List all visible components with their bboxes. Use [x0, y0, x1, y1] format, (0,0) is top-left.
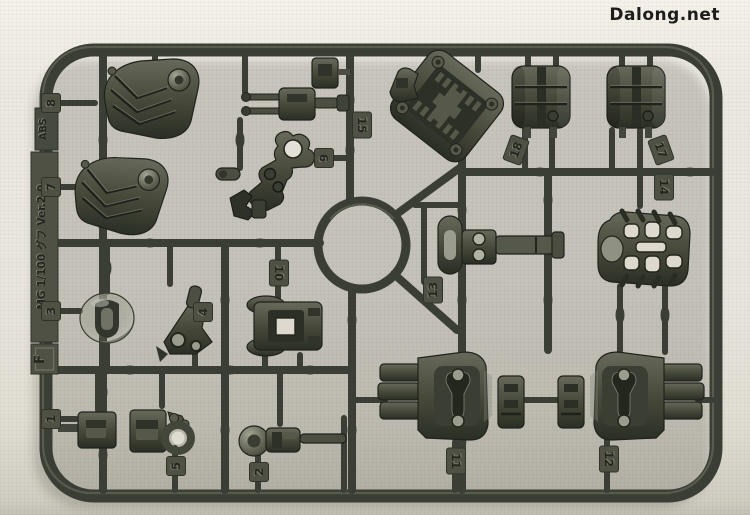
part-number-label: 14	[657, 179, 671, 195]
part-knee-armor-2	[607, 66, 665, 138]
part-shoulder-armor-1	[104, 59, 198, 138]
part-dome	[80, 293, 134, 343]
part-number-tag-11: 1111	[447, 448, 466, 474]
part-number-tag-3: 33	[42, 302, 61, 321]
watermark-dalong: Dalong.net	[609, 5, 720, 25]
sprue-photo: ABS ABS MG 1/100 グフ Ver.2.0 MG 1/100 グフ …	[0, 0, 750, 515]
part-number-label: 9	[317, 154, 331, 162]
photo-of-model-kit-runner: Dalong.net	[0, 0, 750, 515]
part-number-tag-1: 11	[42, 410, 61, 429]
kit-label: MG 1/100 グフ Ver.2.0	[35, 184, 48, 309]
part-number-label: 1	[44, 415, 58, 423]
part-knee-armor-1	[512, 66, 570, 138]
sprue-label-plate: ABS ABS MG 1/100 グフ Ver.2.0 MG 1/100 グフ …	[31, 108, 58, 374]
material-label: ABS	[38, 118, 49, 140]
part-frame-cage	[598, 211, 690, 286]
part-number-tag-12: 1212	[600, 446, 619, 472]
part-number-label: 4	[196, 308, 210, 316]
part-number-tag-9: 99	[315, 149, 334, 168]
part-number-label: 13	[426, 282, 440, 298]
part-number-tag-15: 1515	[353, 112, 372, 138]
runner-letter: F	[32, 354, 48, 364]
part-number-tag-2: 22	[250, 463, 269, 482]
part-core-frame	[247, 296, 322, 356]
part-number-tag-10: 1010	[270, 260, 289, 286]
part-number-tag-5: 55	[167, 457, 186, 476]
part-number-label: 2	[252, 468, 266, 476]
part-number-label: 11	[449, 453, 463, 469]
part-number-label: 10	[272, 265, 286, 281]
part-number-label: 15	[355, 117, 369, 133]
part-number-tag-14: 1414	[655, 174, 674, 200]
part-number-label: 8	[44, 99, 58, 107]
part-number-label: 12	[602, 451, 616, 467]
part-number-tag-8: 88	[42, 94, 61, 113]
part-number-label: 7	[44, 183, 58, 191]
part-number-label: 3	[44, 307, 58, 315]
part-number-tag-4: 44	[194, 303, 213, 322]
part-number-label: 5	[169, 462, 183, 470]
part-number-tag-7: 77	[42, 178, 61, 197]
part-number-tag-13: 1313	[424, 277, 443, 303]
